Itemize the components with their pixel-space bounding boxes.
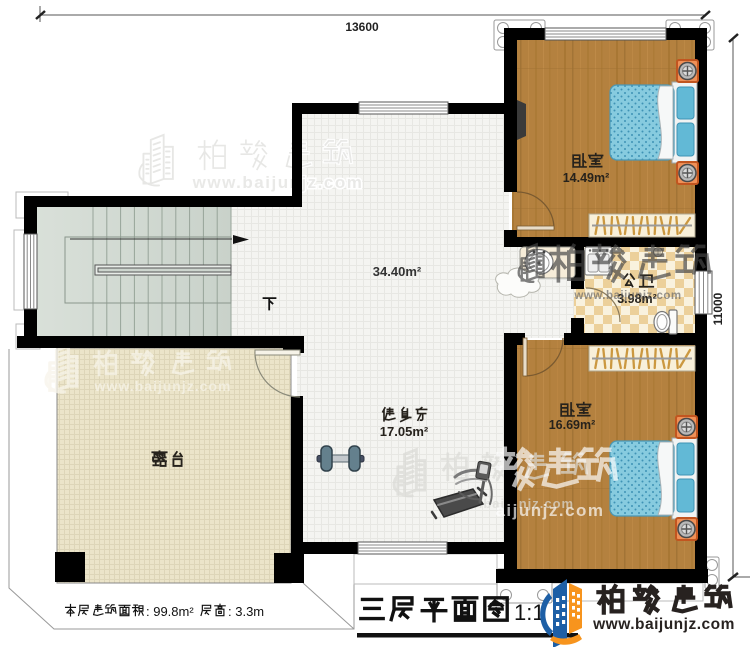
svg-text:17.05m²: 17.05m² (380, 424, 429, 439)
svg-text:16.69m²: 16.69m² (549, 418, 596, 432)
svg-text:: 3.3m: : 3.3m (228, 604, 264, 619)
svg-text:www.baijunjz.com: www.baijunjz.com (94, 378, 232, 394)
svg-text:www.baijunjz.com: www.baijunjz.com (592, 616, 735, 633)
svg-text:aijunjz.com: aijunjz.com (495, 501, 604, 520)
svg-text:14.49m²: 14.49m² (563, 171, 610, 185)
svg-text:www.baijunjz.com: www.baijunjz.com (192, 173, 364, 192)
svg-text:11000: 11000 (711, 292, 725, 325)
svg-text:34.40m²: 34.40m² (373, 264, 422, 279)
svg-text:13600: 13600 (345, 20, 379, 34)
svg-text:1:1: 1:1 (514, 600, 545, 625)
svg-text:www.baijunjz.com: www.baijunjz.com (573, 290, 681, 302)
svg-text:: 99.8m²: : 99.8m² (146, 604, 194, 619)
